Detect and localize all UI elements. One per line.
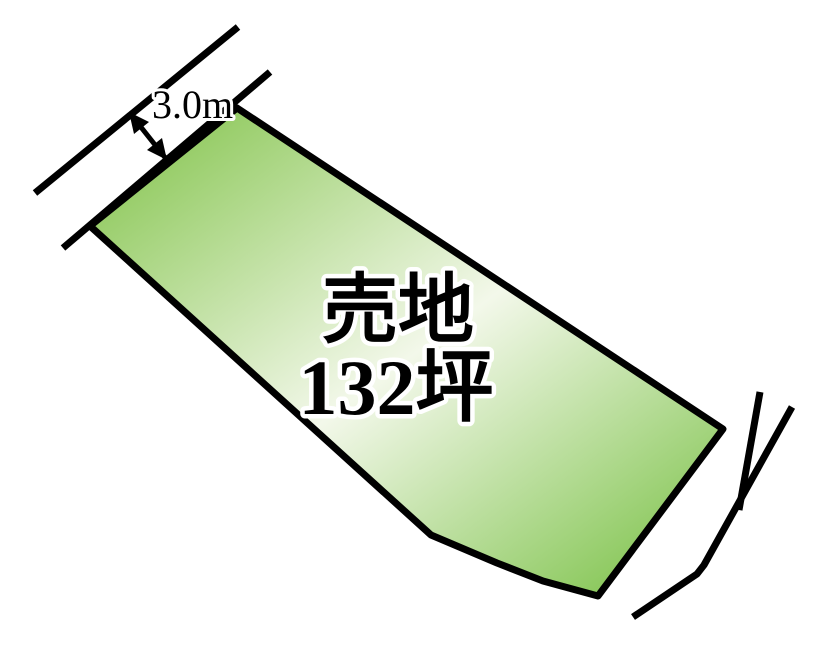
diagram-canvas: 3.0m 売地 132坪 (0, 0, 829, 648)
parcel-label-area: 132坪 (298, 344, 493, 431)
parcel-label-sale: 売地 (322, 265, 474, 354)
dimension-label: 3.0m (152, 82, 233, 127)
land-plot-diagram: 3.0m 売地 132坪 (0, 0, 829, 648)
